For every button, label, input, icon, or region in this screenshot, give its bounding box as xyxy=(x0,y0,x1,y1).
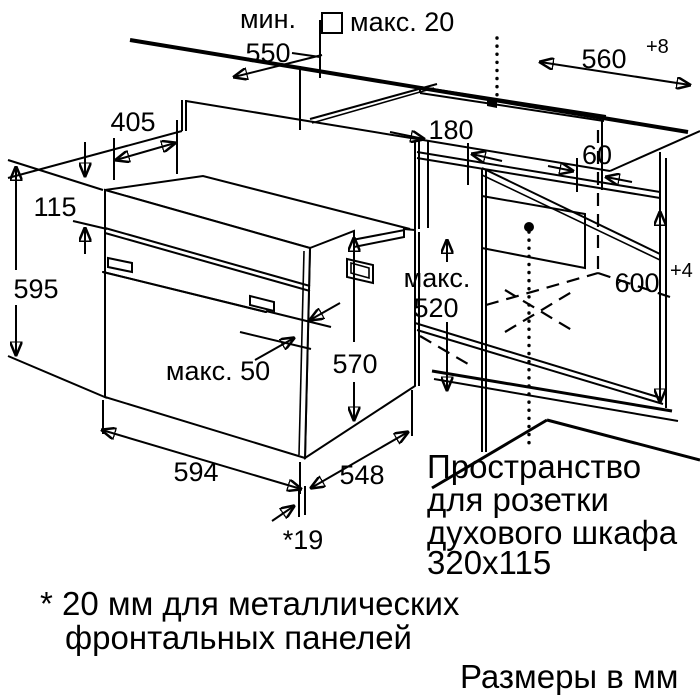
hob-cutout-left-edge xyxy=(310,84,437,119)
socket-note-line1: Пространство xyxy=(427,448,641,485)
socket-space-hatched-area xyxy=(482,196,585,268)
dim-60-value: 60 xyxy=(582,140,612,170)
dim-19-value: *19 xyxy=(283,525,324,555)
dim-570-value: 570 xyxy=(332,349,377,379)
max-520-value: 520 xyxy=(413,293,458,323)
dim-405: 405 xyxy=(110,107,177,180)
hob-slab-top xyxy=(420,87,606,116)
oven xyxy=(103,176,419,458)
footnote-line2: фронтальных панелей xyxy=(65,619,412,656)
dim-560: 560 +8 xyxy=(540,36,690,85)
dim-548-value: 548 xyxy=(339,460,384,490)
dim-560-value: 560 xyxy=(581,44,626,74)
units-note: Размеры в мм xyxy=(460,658,678,695)
dim-max-20: макс. 20 xyxy=(322,7,454,37)
max-20-label: макс. 20 xyxy=(350,7,454,37)
dim-19: *19 xyxy=(272,486,323,555)
max-50-label: макс. 50 xyxy=(166,356,270,386)
min-550-label: мин. xyxy=(240,4,296,34)
dim-594-value: 594 xyxy=(173,457,218,487)
dim-600-value: 600 xyxy=(614,268,659,298)
hob-square-symbol xyxy=(322,13,342,33)
hob-cutout-left-edge-inner xyxy=(312,88,434,123)
dim-115: 115 xyxy=(8,142,107,254)
socket-note-line2: для розетки xyxy=(427,481,609,518)
oven-installation-diagram: мин. 550 макс. 20 560 +8 405 115 xyxy=(0,0,700,700)
max-520-label: макс. xyxy=(404,263,471,293)
dim-405-value: 405 xyxy=(110,107,155,137)
socket-note-line4: 320x115 xyxy=(427,544,551,581)
dim-600: 600 +4 xyxy=(614,212,692,402)
dim-600-tolerance: +4 xyxy=(670,260,693,282)
dim-595-value: 595 xyxy=(13,274,58,304)
dim-115-value: 115 xyxy=(33,192,76,222)
min-550-value: 550 xyxy=(245,38,290,68)
dim-180-value: 180 xyxy=(428,115,473,145)
dim-560-tolerance: +8 xyxy=(646,36,669,58)
footnote-line1: * 20 мм для металлических xyxy=(40,585,460,622)
